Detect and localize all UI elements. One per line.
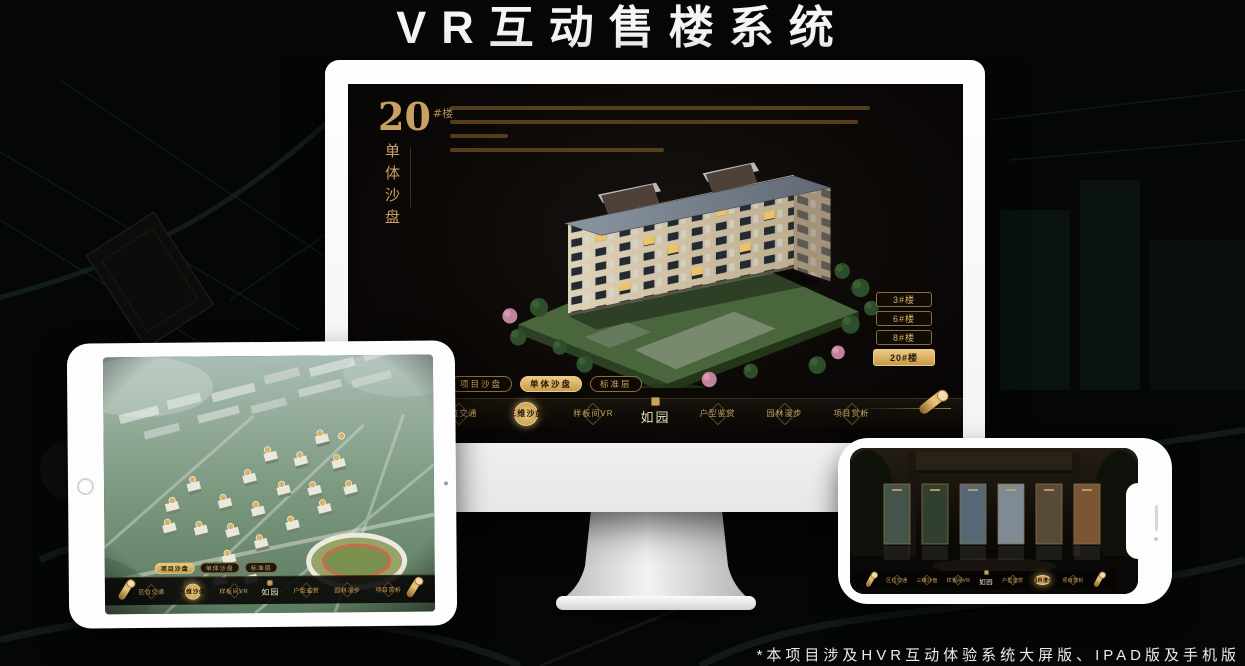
tab-standard-floor[interactable]: 标准层 [245,562,278,573]
tablet-subtabs: 项目沙盘 单体沙盘 标准层 [155,562,278,574]
nav-item-project-appreciation[interactable]: 项目赏析 [832,401,872,427]
description-text [450,106,882,162]
screen-heading: 20 #楼 单体沙盘 [378,98,453,231]
nav-item-location[interactable]: 区位交通 [137,581,165,601]
nav-item-project-appreciation[interactable]: 项目赏析 [1063,573,1084,587]
nav-item-garden-walk[interactable]: 园林漫步 [765,401,805,427]
tab-single-sandbox[interactable]: 单体沙盘 [200,562,240,573]
floor-button-6[interactable]: 6#楼 [876,311,932,326]
tab-standard-floor[interactable]: 标准层 [590,376,642,392]
monitor-stand [550,510,762,620]
nav-divider-line [859,408,951,409]
brand-logo: 如园 [979,570,993,586]
nav-item-3d-sandbox[interactable]: 三维沙盘 [178,581,206,601]
nav-item-floorplan[interactable]: 户型鉴赏 [292,580,320,600]
nav-item-floorplan[interactable]: 户型鉴赏 [1002,573,1023,587]
footnote-text: *本项目涉及HVR互动体验系统大屏版、IPAD版及手机版 [757,644,1240,665]
scroll-icon[interactable] [865,571,877,587]
seal-icon [651,397,660,406]
camera-icon [444,481,448,485]
floor-button-3[interactable]: 3#楼 [876,292,932,307]
tab-project-sandbox[interactable]: 项目沙盘 [450,376,512,392]
tablet-screen: 项目沙盘 单体沙盘 标准层 区位交通 三维沙盘 样板间VR [103,355,435,615]
floor-button-8[interactable]: 8#楼 [876,330,932,345]
heading-rule [410,147,411,207]
heading-subtitle: 单体沙盘 [382,143,403,231]
building-number: 20 [378,98,431,136]
monitor-subtabs: 项目沙盘 单体沙盘 标准层 [450,376,642,392]
tab-single-sandbox[interactable]: 单体沙盘 [520,376,582,392]
brand-logo: 如园 [261,579,279,597]
nav-item-model-room-vr[interactable]: 样板间VR [947,573,970,587]
nav-item-project-appreciation[interactable]: 项目赏析 [374,579,402,599]
tab-project-sandbox[interactable]: 项目沙盘 [155,563,195,574]
phone-notch [1126,483,1144,559]
nav-item-3d-sandbox[interactable]: 三维沙盘 [916,573,937,587]
page-title: VR互动售楼系统 [0,0,1245,57]
camera-icon [1154,537,1158,541]
nav-item-floorplan[interactable]: 户型鉴赏 [698,401,738,427]
scroll-icon[interactable] [1093,571,1105,587]
building-3d-render [460,142,892,388]
nav-item-garden-walk[interactable]: 园林漫步 [1032,573,1053,587]
seal-icon [267,579,273,585]
brand-logo: 如园 [641,397,671,426]
phone-frame: 区位交通 三维沙盘 样板间VR 如园 户型鉴赏 [838,438,1172,604]
scroll-icon[interactable] [917,388,948,416]
seal-icon [984,570,989,575]
home-button [77,477,94,494]
tablet-frame: 项目沙盘 单体沙盘 标准层 区位交通 三维沙盘 样板间VR [67,340,457,628]
speaker-icon [1155,505,1158,531]
floor-button-group: 3#楼 6#楼 8#楼 20#楼 [873,292,935,366]
scroll-icon[interactable] [117,578,135,601]
floor-button-20[interactable]: 20#楼 [873,349,935,366]
stage: VR互动售楼系统 [0,0,1245,666]
phone-navbar: 区位交通 三维沙盘 样板间VR 如园 户型鉴赏 [854,571,1116,589]
tablet-navbar: 区位交通 三维沙盘 样板间VR 如园 户型鉴赏 [105,574,435,605]
nav-item-model-room-vr[interactable]: 样板间VR [219,581,248,601]
nav-item-3d-sandbox[interactable]: 三维沙盘 [506,401,546,427]
phone-screen: 区位交通 三维沙盘 样板间VR 如园 户型鉴赏 [850,448,1138,594]
nav-item-garden-walk[interactable]: 园林漫步 [333,580,361,600]
nav-item-model-room-vr[interactable]: 样板间VR [573,401,613,427]
nav-item-location[interactable]: 区位交通 [886,573,907,587]
scroll-icon[interactable] [405,576,423,599]
